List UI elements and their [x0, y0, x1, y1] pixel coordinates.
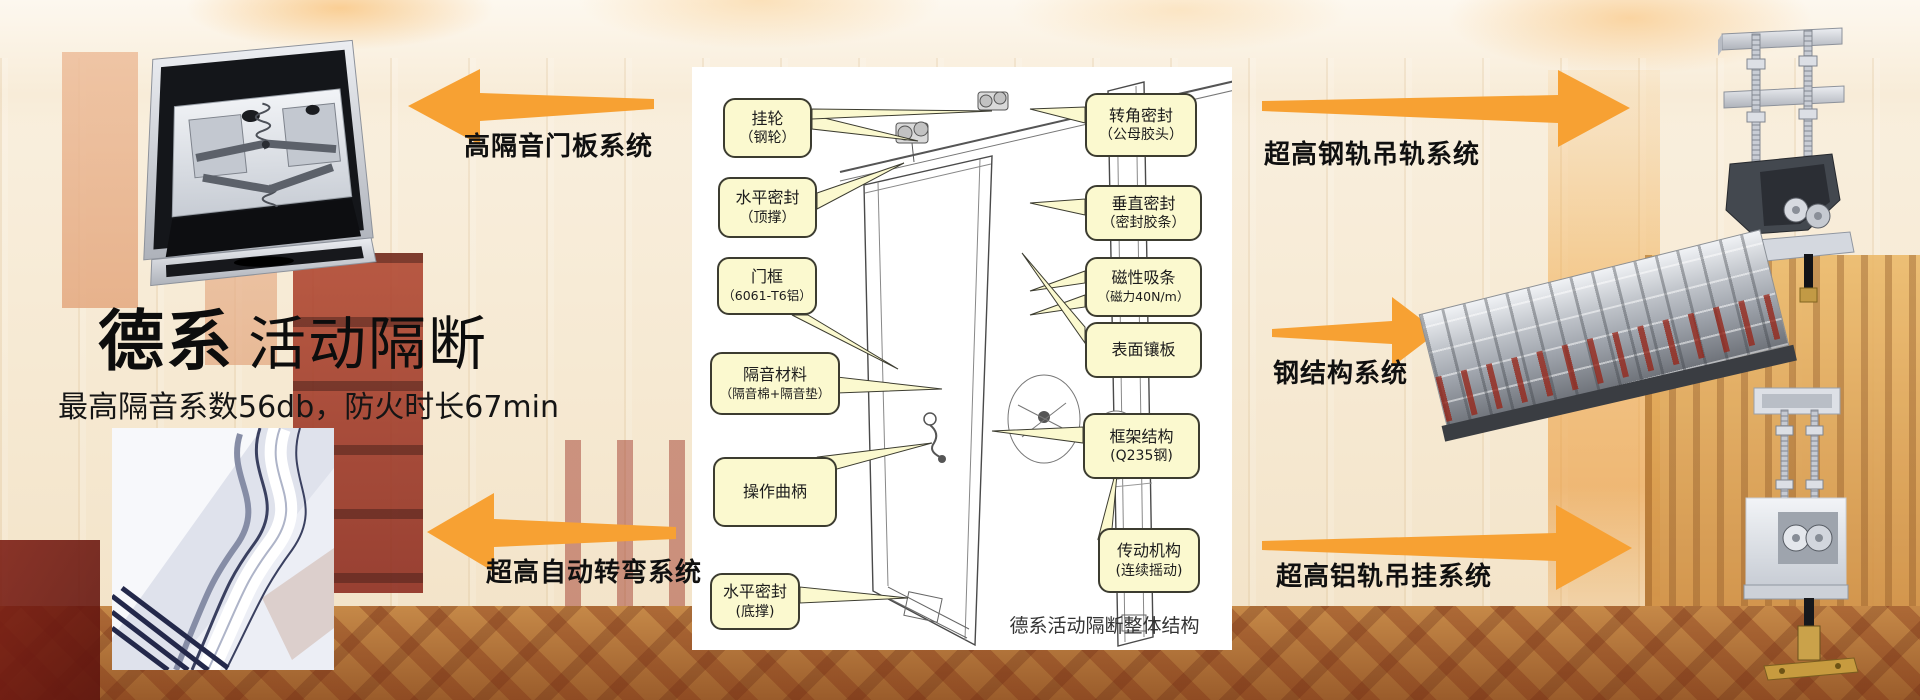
aluminum-rail-hanger-photo	[1726, 380, 1868, 690]
callout-title: 转角密封	[1109, 106, 1173, 127]
callout-sub: （公母胶头）	[1099, 126, 1183, 144]
label-steel-structure-system: 钢结构系统	[1273, 353, 1408, 390]
callout-title: 垂直密封	[1111, 194, 1175, 215]
callout-door-frame: 门框 （6061-T6铝）	[717, 257, 817, 315]
structure-diagram-panel: 挂轮 （钢轮） 水平密封 （顶撑） 门框 （6061-T6铝） 隔音材料 （隔音…	[692, 67, 1232, 650]
label-steel-rail-system: 超高钢轨吊轨系统	[1264, 134, 1480, 171]
callout-magnetic-strip: 磁性吸条 （磁力40N/m）	[1085, 257, 1202, 317]
door-panel-photo	[113, 0, 391, 301]
title-brand: 德系	[98, 288, 234, 384]
callout-sub: （钢轮）	[740, 129, 796, 147]
label-aluminum-rail-system: 超高铝轨吊挂系统	[1276, 556, 1492, 593]
callout-drive-mechanism: 传动机构 (连续摇动)	[1098, 528, 1200, 593]
callout-title: 传动机构	[1117, 541, 1181, 562]
callout-sub: （顶撑）	[740, 209, 796, 227]
callout-sub: (底撑)	[736, 603, 775, 621]
callout-sub: （磁力40N/m）	[1098, 289, 1190, 305]
callout-top-seal: 水平密封 （顶撑）	[718, 177, 817, 238]
callout-operating-crank: 操作曲柄	[713, 457, 837, 527]
callout-sub: （密封胶条）	[1102, 214, 1186, 232]
callout-bottom-seal: 水平密封 (底撑)	[710, 573, 800, 630]
callout-title: 操作曲柄	[743, 482, 807, 503]
callout-vertical-seal: 垂直密封 （密封胶条）	[1085, 185, 1202, 241]
slide-movable-partition: 高隔音门板系统 超高自动转弯系统 超高钢轨吊轨系统 钢结构系统 超高铝轨吊挂系统…	[0, 0, 1920, 700]
callout-title: 水平密封	[723, 582, 787, 603]
page-title: 德系 活动隔断	[98, 288, 488, 384]
callout-title: 门框	[751, 267, 783, 288]
roller-carriage-b	[978, 92, 1008, 110]
callout-sound-insulation: 隔音材料 （隔音棉+隔音垫）	[710, 352, 840, 415]
callout-sub: (Q235钢)	[1110, 447, 1173, 465]
callout-title: 框架结构	[1109, 427, 1173, 448]
callout-sub: （6061-T6铝）	[722, 288, 811, 304]
callout-surface-panel: 表面镶板	[1085, 322, 1202, 378]
callout-title: 水平密封	[735, 188, 799, 209]
diagram-caption: 德系活动隔断整体结构	[992, 611, 1217, 638]
title-rest: 活动隔断	[248, 297, 488, 381]
callout-title: 磁性吸条	[1111, 268, 1175, 289]
background-red-slats	[565, 440, 705, 618]
callout-title: 挂轮	[751, 109, 783, 130]
label-door-panel-system: 高隔音门板系统	[464, 126, 653, 163]
callout-corner-seal: 转角密封 （公母胶头）	[1085, 93, 1197, 157]
curve-track-photo	[112, 428, 334, 670]
callout-hanging-wheel: 挂轮 （钢轮）	[723, 98, 812, 158]
title-subtitle: 最高隔音系数56db，防火时长67min	[58, 382, 559, 426]
callout-sub: （隔音棉+隔音垫）	[720, 386, 830, 402]
background-carpet-corner	[0, 540, 100, 700]
callout-frame-structure: 框架结构 (Q235钢)	[1083, 413, 1200, 479]
callout-title: 隔音材料	[743, 365, 807, 386]
callout-title: 表面镶板	[1111, 340, 1175, 361]
label-auto-turn-system: 超高自动转弯系统	[486, 552, 702, 589]
callout-sub: (连续摇动)	[1116, 562, 1183, 580]
